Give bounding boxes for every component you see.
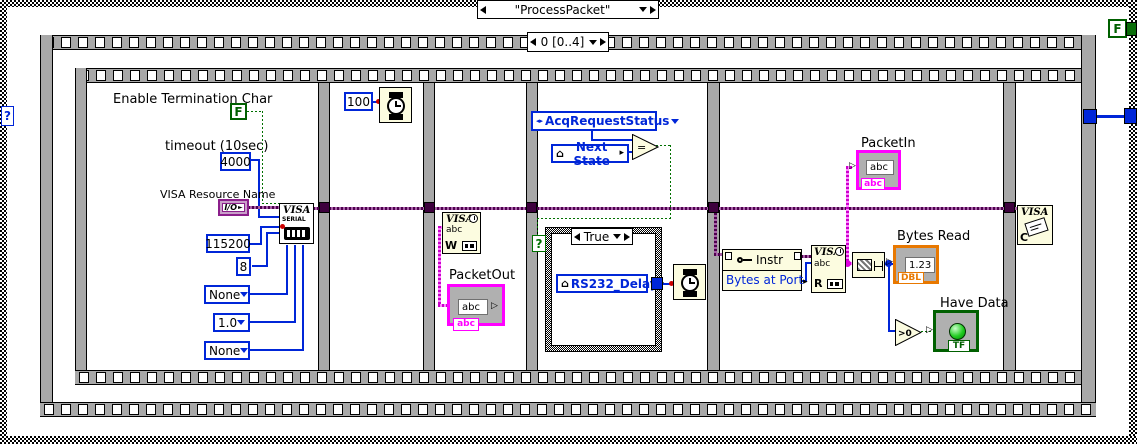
have-data-type-tag: TF <box>948 340 970 352</box>
string-icon <box>857 259 872 271</box>
inner-sequence-border-left[interactable] <box>75 68 87 385</box>
rs232-delay-global[interactable]: ⌂ RS232_Delay ▸ <box>556 274 648 293</box>
data-bits-constant[interactable]: 8 <box>236 257 251 276</box>
wire-int-databits[interactable] <box>266 232 279 234</box>
monitor-icon <box>827 279 843 289</box>
sequence-prev-icon[interactable] <box>530 38 536 46</box>
have-data-label: Have Data <box>940 296 1009 311</box>
property-node[interactable]: Instr Bytes at Port▸ <box>722 249 802 291</box>
stop-bits-value: 1.0 <box>218 316 237 330</box>
string-handle-icon: ▷ <box>491 302 498 311</box>
case-tunnel-boolean[interactable] <box>1126 22 1137 36</box>
sequence-tunnel-int[interactable] <box>1083 109 1097 124</box>
wire-visa-branch[interactable] <box>714 209 717 256</box>
property-item-label: Bytes at Port <box>726 273 803 287</box>
wire-bool-equal[interactable] <box>537 218 671 219</box>
timeout-label: timeout (10sec) <box>165 139 268 154</box>
watch-hand-icon <box>396 105 401 107</box>
visa-resource-inner[interactable]: I/O► <box>222 203 245 212</box>
case-prev-icon[interactable] <box>480 6 486 14</box>
bytes-read-type-tag: DBL <box>898 272 924 284</box>
inner-case-selector-terminal[interactable]: ? <box>532 235 546 252</box>
packet-in-type-tag: abc <box>861 178 885 190</box>
greater-than-zero-node[interactable]: >0 <box>895 319 922 346</box>
visa-serial-title: VISA <box>283 206 310 216</box>
visa-close-node[interactable]: VISA C <box>1017 205 1053 245</box>
visa-read-node[interactable]: VISA abc R <box>811 245 846 293</box>
equal-node[interactable]: = <box>632 134 659 160</box>
enum-dropdown-icon[interactable] <box>671 119 679 124</box>
wire-int-databits[interactable] <box>266 233 268 267</box>
equal-sign: = <box>637 141 646 154</box>
gt-zero-sign: >0 <box>898 329 912 339</box>
flow-control-dropdown-icon[interactable] <box>240 348 248 353</box>
visa-close-c: C <box>1020 231 1028 244</box>
tunnel-visa[interactable] <box>319 202 330 213</box>
enable-termination-label: Enable Termination Char <box>113 92 272 107</box>
visa-read-r: R <box>814 277 822 290</box>
wait-ms-node[interactable] <box>379 87 412 123</box>
case-tunnel-int[interactable] <box>1124 108 1137 124</box>
packet-in-value[interactable]: abc <box>866 160 894 175</box>
property-node-item[interactable]: Bytes at Port▸ <box>726 273 808 287</box>
parity-ring-constant[interactable]: None <box>204 285 250 304</box>
property-node-divider <box>723 270 801 271</box>
sequence-border-bottom[interactable] <box>40 402 1096 417</box>
case-selector-terminal[interactable]: ? <box>1 106 14 126</box>
wire-bool-term[interactable] <box>247 111 263 112</box>
wire-string-read[interactable] <box>846 167 849 264</box>
visa-write-node[interactable]: VISA abc W <box>442 212 481 254</box>
wire-int-parity[interactable] <box>286 245 288 295</box>
visa-write-w: W <box>445 239 457 252</box>
wire-int-timeout[interactable] <box>258 216 279 218</box>
tunnel-visa[interactable] <box>424 202 435 213</box>
case-next-icon[interactable] <box>650 6 656 14</box>
string-length-node[interactable] <box>852 252 885 278</box>
acq-request-status-enum[interactable]: ◂▸ AcqRequestStatus <box>531 111 657 131</box>
stop-bits-ring-constant[interactable]: 1.0 <box>213 313 250 332</box>
io-arrow-icon: ► <box>238 203 243 212</box>
wire-int-length[interactable] <box>888 263 890 332</box>
next-state-global[interactable]: ⌂ Next State ▸ <box>551 144 629 163</box>
flow-control-value: None <box>209 344 240 358</box>
tunnel-visa[interactable] <box>526 202 537 213</box>
visa-serial-subtitle: SERIAL <box>282 216 306 223</box>
watch-hand-icon <box>690 282 695 284</box>
wire-int-flow[interactable] <box>250 349 304 351</box>
true-false-constant[interactable]: F <box>1108 19 1127 38</box>
visa-resource-control[interactable]: I/O► <box>218 199 249 216</box>
enum-glyph-icon: ◂▸ <box>536 117 543 125</box>
packet-out-value[interactable]: abc <box>458 299 488 315</box>
inner-case-prev-icon[interactable] <box>574 233 580 241</box>
frame-separator-5[interactable] <box>1003 83 1016 370</box>
required-input-dot <box>280 224 285 229</box>
case-selector-label: "ProcessPacket" <box>489 3 636 17</box>
frame-separator-2[interactable] <box>423 83 435 370</box>
parity-dropdown-icon[interactable] <box>240 292 248 297</box>
next-state-value: Next State <box>566 140 618 168</box>
frame-separator-1[interactable] <box>318 83 330 370</box>
enum-value: AcqRequestStatus <box>545 114 669 128</box>
wire-int-stopbits[interactable] <box>294 245 296 323</box>
output-arrow-icon: ▸ <box>619 149 624 158</box>
timeout-clock-icon <box>469 214 478 223</box>
wait-ms-node[interactable] <box>673 264 706 300</box>
flow-control-ring-constant[interactable]: None <box>204 341 250 360</box>
tunnel-visa[interactable] <box>708 202 719 213</box>
packet-out-type-tag: abc <box>453 318 479 331</box>
inner-sequence-border-top[interactable] <box>75 68 1081 83</box>
case-selector[interactable]: "ProcessPacket" <box>477 0 659 19</box>
wire-int-stopbits[interactable] <box>250 321 296 323</box>
monitor-icon <box>462 241 477 251</box>
wire-int-flow[interactable] <box>302 245 304 351</box>
indicator-input-arrow-icon: ▷ <box>886 258 893 267</box>
inner-case-next-icon[interactable] <box>624 233 630 241</box>
wire-visa-resource[interactable] <box>248 206 279 209</box>
wire-int-baud[interactable] <box>260 226 279 228</box>
io-label: I/O <box>224 203 237 212</box>
inner-case-tunnel[interactable] <box>651 277 663 290</box>
enable-termination-constant[interactable]: F <box>230 103 247 120</box>
timeout-clock-icon <box>835 247 844 256</box>
sequence-next-icon[interactable] <box>600 38 606 46</box>
inner-case-selector[interactable]: True <box>571 228 633 245</box>
property-node-class: Instr <box>756 253 783 267</box>
reference-corner-icon <box>725 252 732 260</box>
dip-switch-icon <box>284 227 310 240</box>
global-house-icon: ⌂ <box>561 277 569 290</box>
visa-read-abc: abc <box>814 260 830 269</box>
wire-visa-main[interactable] <box>313 207 1019 210</box>
wire-visa-propread[interactable] <box>801 255 811 258</box>
case-dropdown-icon[interactable] <box>639 7 647 12</box>
output-arrow-icon: ▸ <box>803 277 808 287</box>
baud-rate-constant[interactable]: 115200 <box>206 234 250 253</box>
visa-configure-serial-node[interactable]: VISA SERIAL <box>279 203 314 244</box>
sequence-dropdown-icon[interactable] <box>589 40 597 45</box>
bytes-read-label: Bytes Read <box>897 229 970 244</box>
stop-bits-dropdown-icon[interactable] <box>237 320 245 325</box>
rs232-delay-value: RS232_Delay <box>571 277 658 291</box>
case-structure-border-bottom[interactable] <box>0 436 1137 444</box>
labview-block-diagram: "ProcessPacket" ? F 0 [0..4] <box>0 0 1137 444</box>
inner-case-selector-label: True <box>583 230 610 244</box>
case-structure-border-left[interactable] <box>0 0 7 444</box>
indicator-input-arrow-icon: ▷ <box>926 326 933 335</box>
sequence-frame-selector[interactable]: 0 [0..4] <box>527 32 609 52</box>
sequence-border-left[interactable] <box>40 35 53 417</box>
tunnel-visa[interactable] <box>1004 202 1015 213</box>
led-icon[interactable] <box>949 323 966 340</box>
inner-sequence-border-bottom[interactable] <box>75 370 1081 385</box>
packet-out-label: PacketOut <box>449 268 515 283</box>
wire-int-baud[interactable] <box>260 227 262 245</box>
timeout-constant[interactable]: 4000 <box>220 152 251 171</box>
wire-bool-term[interactable] <box>262 203 279 204</box>
wire-bool-equal[interactable] <box>670 145 671 219</box>
reference-corner-icon <box>794 252 801 260</box>
inner-case-dropdown-icon[interactable] <box>613 234 621 239</box>
bytes-read-value[interactable]: 1.23 <box>905 257 935 273</box>
visa-write-abc: abc <box>446 226 462 235</box>
case-structure-border-right[interactable] <box>1129 0 1137 444</box>
packet-in-label: PacketIn <box>861 136 916 151</box>
indicator-input-arrow-icon: ▷ <box>849 162 856 171</box>
global-house-icon: ⌂ <box>556 147 564 160</box>
key-icon <box>743 259 752 261</box>
wait-ms-constant[interactable]: 100 <box>344 92 373 111</box>
wire-int-right[interactable] <box>1096 115 1126 118</box>
wire-int-parity[interactable] <box>250 293 288 295</box>
wire-string-packetout[interactable] <box>438 226 441 307</box>
length-measure-icon <box>874 261 883 271</box>
sequence-border-right[interactable] <box>1081 35 1096 417</box>
parity-value: None <box>209 288 240 302</box>
sequence-selector-label: 0 [0..4] <box>539 35 586 49</box>
